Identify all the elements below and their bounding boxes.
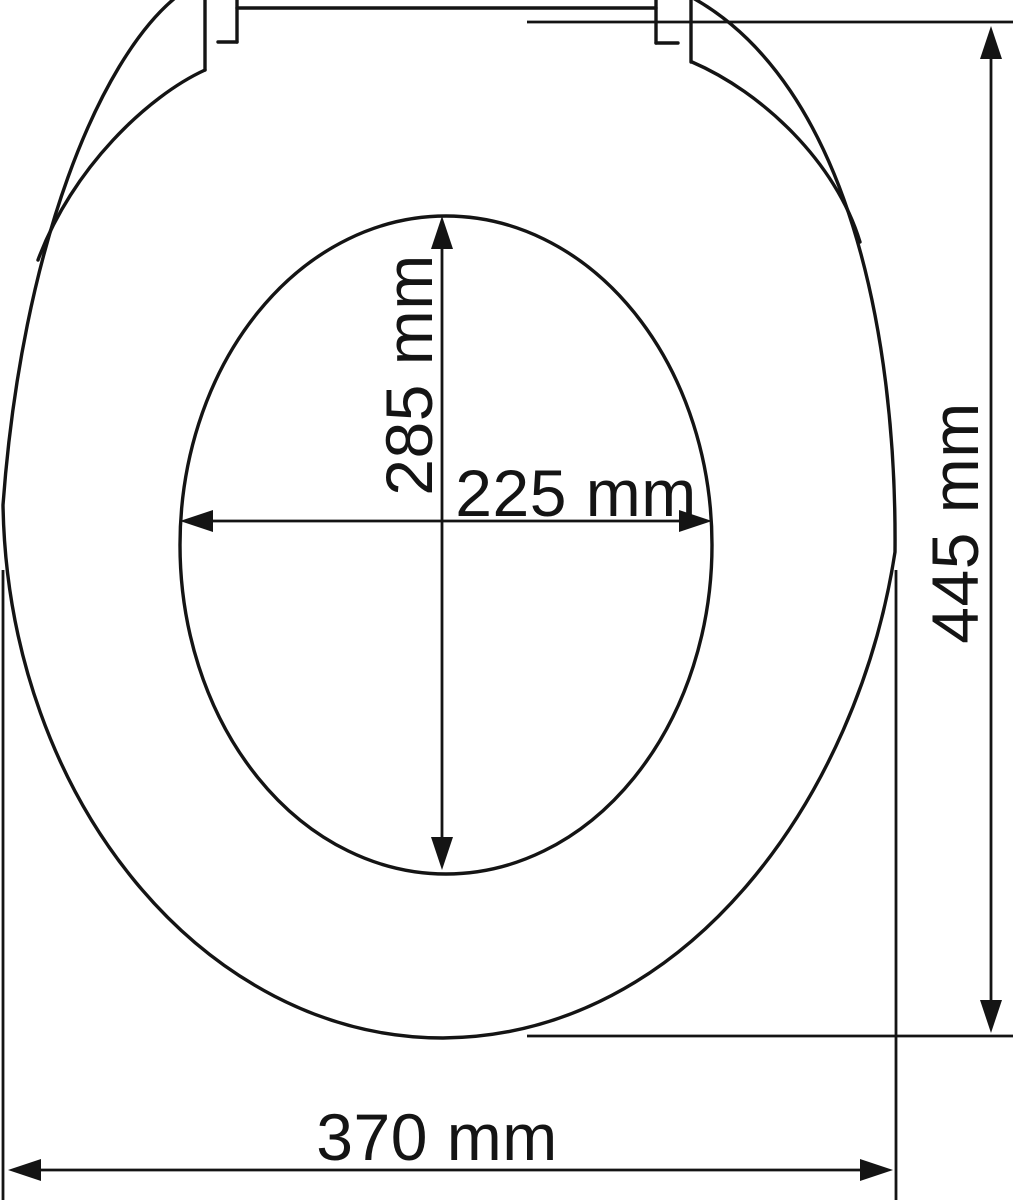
inner-length-arrowhead-down — [431, 837, 453, 870]
inner-width-arrowhead-left — [180, 510, 213, 532]
dimension-label-overall-width: 370 mm — [316, 1104, 557, 1170]
dimension-label-inner-width: 225 mm — [455, 460, 696, 526]
arrowheads-group — [8, 26, 1002, 1181]
seat-rim-curve-right — [692, 62, 860, 242]
seat-rim-curve-left — [38, 70, 205, 260]
dimension-label-inner-length: 285 mm — [376, 254, 442, 495]
seat-outline-group — [3, 0, 895, 1038]
dimension-label-overall-length: 445 mm — [922, 402, 988, 643]
dimension-lines-group — [3, 22, 1013, 1200]
overall-width-arrowhead-left — [8, 1159, 41, 1181]
toilet-seat-dimension-drawing — [0, 0, 1013, 1200]
outer-seat-outline — [3, 0, 895, 1038]
inner-length-arrowhead-up — [431, 216, 453, 249]
technical-drawing-canvas: 285 mm 225 mm 445 mm 370 mm — [0, 0, 1013, 1200]
overall-length-arrowhead-down — [980, 1000, 1002, 1033]
overall-width-arrowhead-right — [860, 1159, 893, 1181]
overall-length-arrowhead-up — [980, 26, 1002, 59]
inner-opening-outline — [180, 216, 712, 874]
